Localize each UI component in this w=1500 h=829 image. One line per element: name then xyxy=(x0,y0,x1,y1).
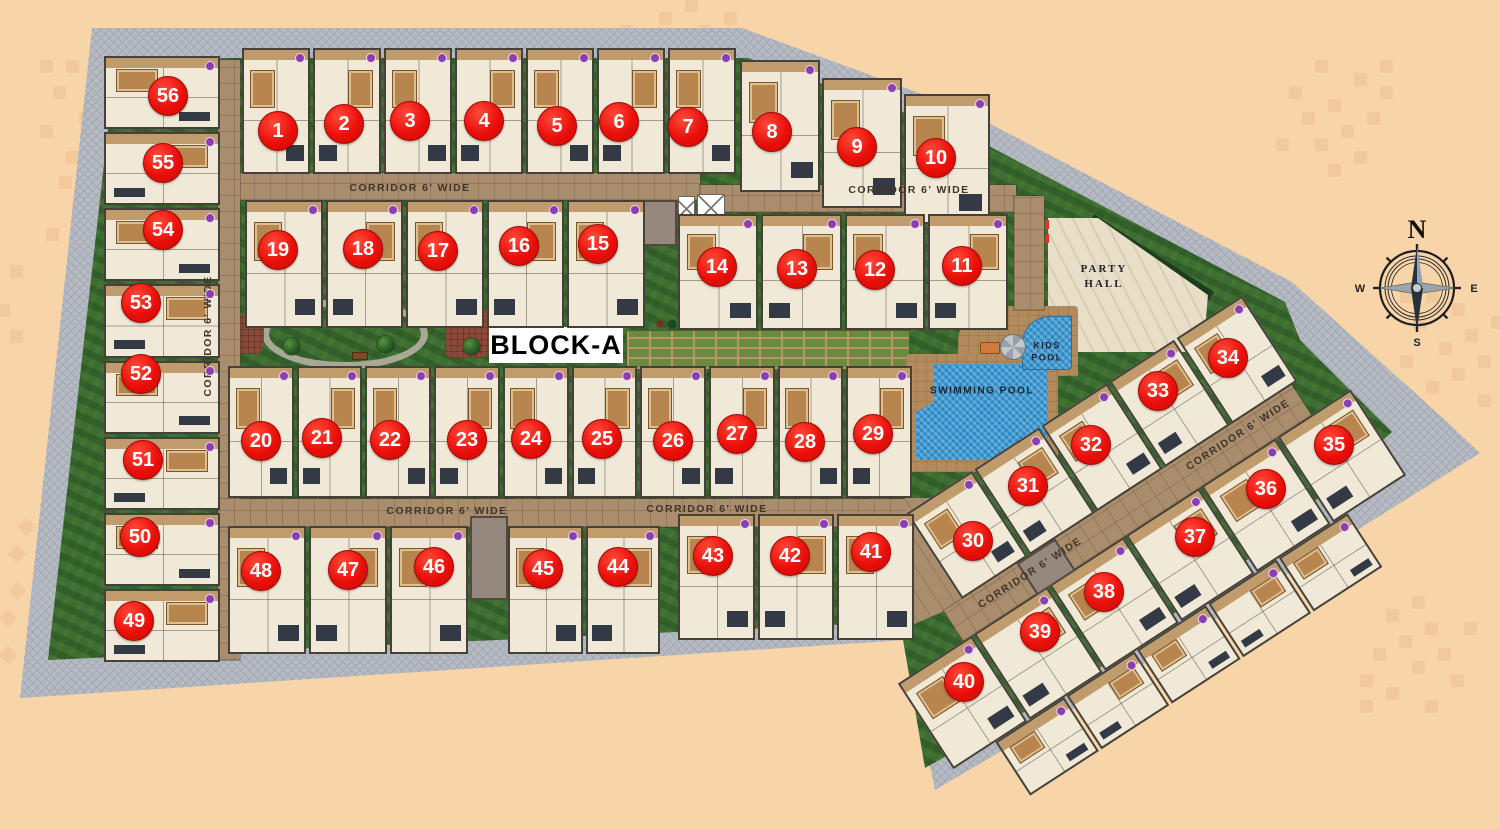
hedge-planter xyxy=(626,330,910,370)
unit-marker-9[interactable]: 9 xyxy=(837,127,877,167)
unit-marker-47[interactable]: 47 xyxy=(328,550,368,590)
unit-number-dot xyxy=(508,53,518,63)
unit-marker-44[interactable]: 44 xyxy=(598,547,638,587)
party-hall-entry-mark xyxy=(1045,234,1049,243)
unit-marker-25[interactable]: 25 xyxy=(582,419,622,459)
party-hall-label: PARTY HALL xyxy=(1081,262,1128,292)
unit-number-dot xyxy=(740,519,750,529)
unit-marker-33[interactable]: 33 xyxy=(1138,371,1178,411)
unit-number-dot xyxy=(347,371,357,381)
unit-marker-20[interactable]: 20 xyxy=(241,421,281,461)
unit-number-dot xyxy=(308,205,318,215)
unit-marker-11[interactable]: 11 xyxy=(942,246,982,286)
background-pattern xyxy=(17,517,35,535)
unit-number-dot xyxy=(827,219,837,229)
tree-icon xyxy=(283,338,300,355)
unit-marker-35[interactable]: 35 xyxy=(1314,425,1354,465)
unit-marker-40[interactable]: 40 xyxy=(944,662,984,702)
unit-number-dot xyxy=(205,518,215,528)
apartment-unit xyxy=(104,513,220,586)
unit-number-dot xyxy=(828,371,838,381)
unit-marker-55[interactable]: 55 xyxy=(143,143,183,183)
unit-marker-23[interactable]: 23 xyxy=(447,420,487,460)
background-pattern xyxy=(10,330,23,343)
unit-number-dot xyxy=(650,53,660,63)
apartment-unit xyxy=(309,526,387,654)
unit-marker-18[interactable]: 18 xyxy=(343,229,383,269)
unit-marker-8[interactable]: 8 xyxy=(752,112,792,152)
unit-number-dot xyxy=(1267,566,1281,580)
site-plan: BLOCK-A PARTY HALL SWIMMING POOL KIDS PO… xyxy=(0,0,1500,829)
unit-marker-45[interactable]: 45 xyxy=(523,549,563,589)
kids-pool-line2: POOL xyxy=(1031,352,1063,362)
unit-number-dot xyxy=(205,442,215,452)
unit-marker-48[interactable]: 48 xyxy=(241,551,281,591)
tree-icon xyxy=(377,336,394,353)
unit-number-dot xyxy=(1189,495,1203,509)
unit-marker-21[interactable]: 21 xyxy=(302,418,342,458)
unit-marker-17[interactable]: 17 xyxy=(418,231,458,271)
unit-number-dot xyxy=(1164,346,1178,360)
background-pattern xyxy=(1360,700,1373,713)
compass-east-label: E xyxy=(1470,283,1477,295)
unit-marker-5[interactable]: 5 xyxy=(537,106,577,146)
unit-number-dot xyxy=(579,53,589,63)
apartment-unit xyxy=(758,514,835,640)
pool-lounger-icon xyxy=(980,342,1000,354)
unit-number-dot xyxy=(622,371,632,381)
unit-marker-19[interactable]: 19 xyxy=(258,230,298,270)
apartment-unit xyxy=(104,437,220,510)
unit-marker-43[interactable]: 43 xyxy=(693,536,733,576)
main-unit-row xyxy=(508,526,660,654)
apartment-unit xyxy=(586,526,661,654)
unit-marker-24[interactable]: 24 xyxy=(511,419,551,459)
unit-number-dot xyxy=(819,519,829,529)
unit-number-dot xyxy=(743,219,753,229)
unit-number-dot xyxy=(1196,612,1210,626)
unit-number-dot xyxy=(549,205,559,215)
unit-marker-56[interactable]: 56 xyxy=(148,76,188,116)
apartment-unit xyxy=(567,200,645,328)
kids-pool-label: KIDS POOL xyxy=(1031,340,1063,363)
unit-marker-49[interactable]: 49 xyxy=(114,601,154,641)
unit-number-dot xyxy=(291,531,301,541)
compass-north-label: N xyxy=(1408,218,1427,244)
compass-rose: N E W S xyxy=(1352,218,1482,350)
unit-number-dot xyxy=(1029,434,1043,448)
unit-number-dot xyxy=(805,65,815,75)
apartment-unit xyxy=(508,526,583,654)
unit-marker-32[interactable]: 32 xyxy=(1071,425,1111,465)
unit-number-dot xyxy=(1265,446,1279,460)
unit-marker-15[interactable]: 15 xyxy=(578,224,618,264)
unit-number-dot xyxy=(691,371,701,381)
compass-west-label: W xyxy=(1355,283,1366,295)
unit-number-dot xyxy=(372,531,382,541)
unit-marker-29[interactable]: 29 xyxy=(853,414,893,454)
unit-marker-31[interactable]: 31 xyxy=(1008,466,1048,506)
corridor-label: CORRIDOR 6' WIDE xyxy=(646,503,767,515)
unit-number-dot xyxy=(205,61,215,71)
unit-number-dot xyxy=(910,219,920,229)
unit-number-dot xyxy=(279,371,289,381)
unit-marker-50[interactable]: 50 xyxy=(120,517,160,557)
unit-number-dot xyxy=(568,531,578,541)
garden-bench xyxy=(352,352,368,360)
unit-number-dot xyxy=(887,83,897,93)
unit-marker-51[interactable]: 51 xyxy=(123,440,163,480)
apartment-unit xyxy=(678,514,755,640)
block-title: BLOCK-A xyxy=(489,327,623,363)
tree-icon xyxy=(463,338,480,355)
corridor-label: CORRIDOR 6' WIDE xyxy=(386,505,507,517)
unit-number-dot xyxy=(437,53,447,63)
party-hall-line1: PARTY xyxy=(1081,263,1128,275)
unit-marker-6[interactable]: 6 xyxy=(599,102,639,142)
corridor-label: CORRIDOR 6' WIDE xyxy=(848,184,969,196)
unit-number-dot xyxy=(295,53,305,63)
unit-number-dot xyxy=(975,99,985,109)
unit-marker-36[interactable]: 36 xyxy=(1246,469,1286,509)
unit-number-dot xyxy=(1125,658,1139,672)
unit-marker-26[interactable]: 26 xyxy=(653,421,693,461)
unit-marker-2[interactable]: 2 xyxy=(324,104,364,144)
unit-number-dot xyxy=(1037,594,1051,608)
unit-marker-10[interactable]: 10 xyxy=(916,138,956,178)
unit-marker-22[interactable]: 22 xyxy=(370,420,410,460)
unit-marker-37[interactable]: 37 xyxy=(1175,517,1215,557)
unit-number-dot xyxy=(205,213,215,223)
unit-number-dot xyxy=(1341,396,1355,410)
corridor-party-hall xyxy=(1014,196,1044,310)
compass-hub xyxy=(1413,284,1422,293)
unit-number-dot xyxy=(1113,544,1127,558)
unit-number-dot xyxy=(205,594,215,604)
umbrella-icon xyxy=(1000,334,1026,360)
unit-marker-42[interactable]: 42 xyxy=(770,536,810,576)
background-pattern xyxy=(1380,60,1393,73)
unit-marker-7[interactable]: 7 xyxy=(668,107,708,147)
unit-marker-34[interactable]: 34 xyxy=(1208,338,1248,378)
unit-marker-53[interactable]: 53 xyxy=(121,283,161,323)
unit-marker-28[interactable]: 28 xyxy=(785,422,825,462)
unit-marker-38[interactable]: 38 xyxy=(1084,572,1124,612)
unit-marker-39[interactable]: 39 xyxy=(1020,612,1060,652)
unit-number-dot xyxy=(961,643,975,657)
unit-number-dot xyxy=(897,371,907,381)
unit-number-dot xyxy=(630,205,640,215)
lift-core xyxy=(470,516,508,600)
party-hall-line2: HALL xyxy=(1084,278,1123,290)
unit-number-dot xyxy=(1097,390,1111,404)
unit-marker-54[interactable]: 54 xyxy=(143,210,183,250)
unit-number-dot xyxy=(485,371,495,381)
unit-number-dot xyxy=(1232,303,1246,317)
unit-number-dot xyxy=(760,371,770,381)
unit-number-dot xyxy=(416,371,426,381)
unit-number-dot xyxy=(205,366,215,376)
unit-number-dot xyxy=(899,519,909,529)
unit-number-dot xyxy=(366,53,376,63)
unit-marker-14[interactable]: 14 xyxy=(697,247,737,287)
unit-number-dot xyxy=(962,478,976,492)
unit-marker-27[interactable]: 27 xyxy=(717,414,757,454)
apartment-unit xyxy=(390,526,468,654)
unit-number-dot xyxy=(205,137,215,147)
corridor-label: CORRIDOR 6' WIDE xyxy=(349,182,470,194)
unit-number-dot xyxy=(1054,704,1068,718)
unit-marker-46[interactable]: 46 xyxy=(414,547,454,587)
swimming-pool-label: SWIMMING POOL xyxy=(930,385,1034,398)
unit-marker-12[interactable]: 12 xyxy=(855,250,895,290)
unit-marker-30[interactable]: 30 xyxy=(953,521,993,561)
unit-marker-41[interactable]: 41 xyxy=(851,532,891,572)
unit-number-dot xyxy=(554,371,564,381)
party-hall-entry-mark xyxy=(1045,220,1049,229)
unit-marker-4[interactable]: 4 xyxy=(464,101,504,141)
unit-number-dot xyxy=(993,219,1003,229)
unit-number-dot xyxy=(645,531,655,541)
unit-number-dot xyxy=(721,53,731,63)
unit-number-dot xyxy=(388,205,398,215)
unit-number-dot xyxy=(453,531,463,541)
background-pattern xyxy=(40,60,53,73)
kids-pool-line1: KIDS xyxy=(1033,340,1061,350)
unit-marker-13[interactable]: 13 xyxy=(777,249,817,289)
compass-south-label: S xyxy=(1413,337,1420,349)
unit-marker-1[interactable]: 1 xyxy=(258,111,298,151)
unit-marker-16[interactable]: 16 xyxy=(499,226,539,266)
unit-marker-3[interactable]: 3 xyxy=(390,101,430,141)
unit-number-dot xyxy=(469,205,479,215)
unit-marker-52[interactable]: 52 xyxy=(121,354,161,394)
unit-number-dot xyxy=(1338,520,1352,534)
